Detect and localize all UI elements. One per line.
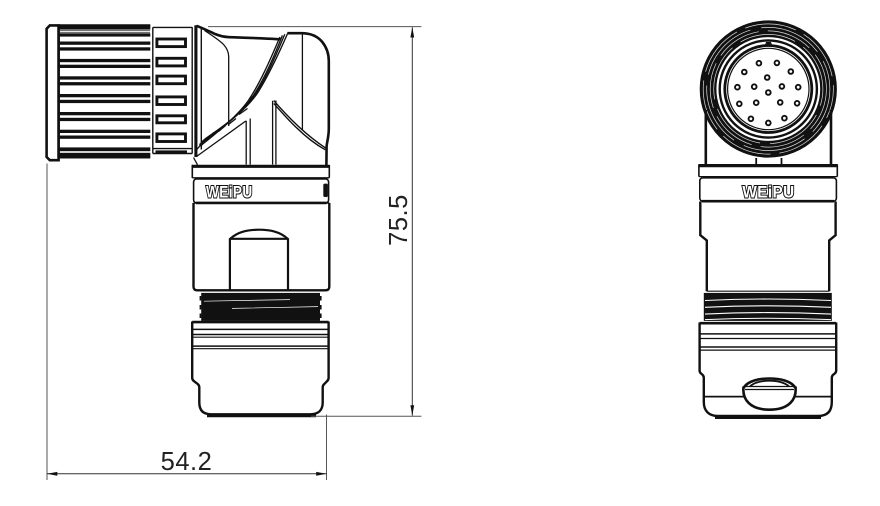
svg-text:WEiPU: WEiPU — [206, 183, 253, 202]
svg-text:WEiPU: WEiPU — [742, 183, 794, 202]
svg-text:75.5: 75.5 — [385, 194, 413, 246]
svg-text:54.2: 54.2 — [161, 448, 213, 476]
